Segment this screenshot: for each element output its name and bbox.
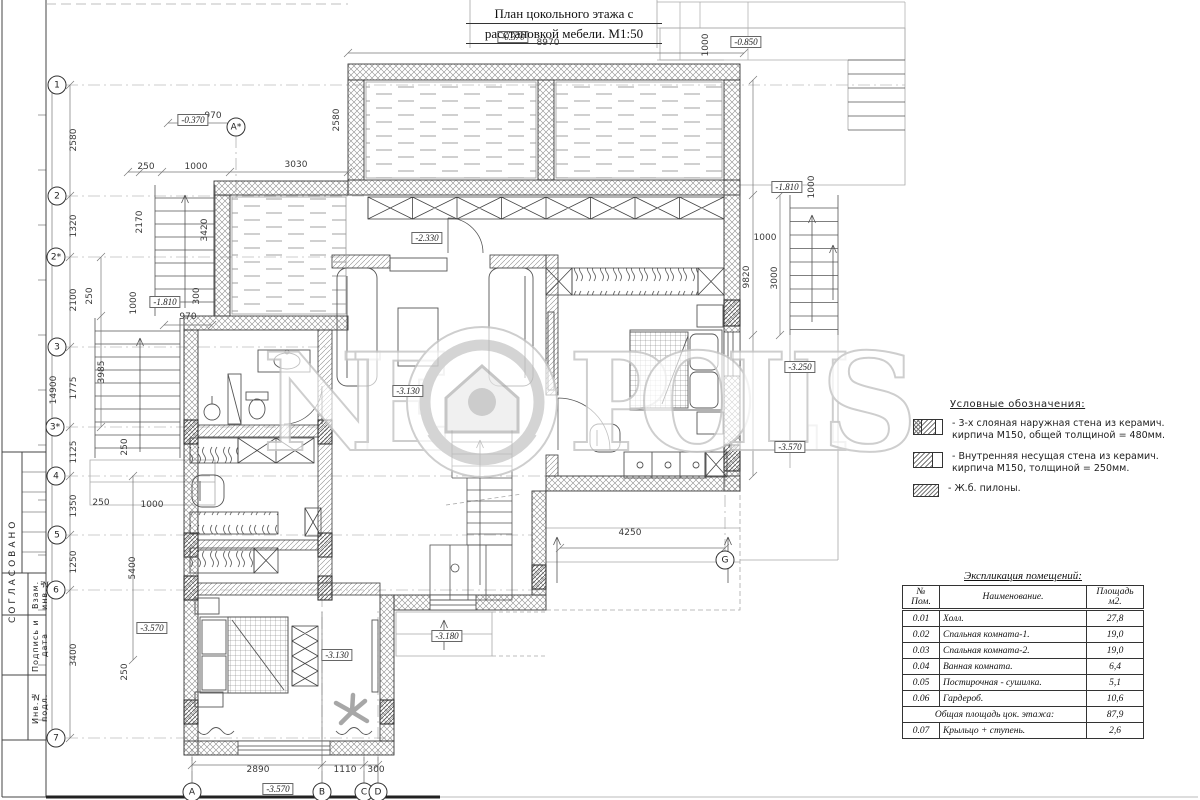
dimension-label: 3420 — [200, 219, 210, 242]
room-table-cell: 0.02 — [903, 627, 940, 643]
elevation-label: -3.180 — [431, 630, 462, 642]
axis-marker-3: 3 — [48, 338, 67, 357]
dimension-label: 1250 — [69, 551, 79, 574]
room-table-cell: 19,0 — [1087, 627, 1144, 643]
dimension-label: 250 — [92, 498, 109, 508]
dimension-label: 1110 — [334, 765, 357, 775]
dimension-label: 250 — [120, 438, 130, 455]
dimension-label: 2170 — [135, 211, 145, 234]
table-row: 0.02Спальная комната-1.19,0 — [903, 627, 1144, 643]
room-table-cell: 10,6 — [1087, 691, 1144, 707]
axis-marker-2: 2 — [48, 187, 67, 206]
room-table-cell: 0.03 — [903, 643, 940, 659]
room-table-cell: Гардероб. — [940, 691, 1087, 707]
dimension-label: 1000 — [129, 292, 139, 315]
room-table-header: Площадь м2. — [1087, 586, 1144, 610]
dimension-label: 5400 — [128, 557, 138, 580]
dimension-label: 1775 — [69, 377, 79, 400]
elevation-label: -3.130 — [392, 385, 423, 397]
room-table-cell: 0.06 — [903, 691, 940, 707]
dimension-label: 300 — [192, 287, 202, 304]
legend-item-text: - Ж.б. пилоны. — [948, 483, 1021, 495]
dimension-label: 1000 — [141, 500, 164, 510]
elevation-label: -2.330 — [411, 232, 442, 244]
dimension-label: 250 — [120, 663, 130, 680]
elevation-label: -3.570 — [262, 783, 293, 795]
stamp-field: Взам. инв.№ — [31, 576, 49, 613]
table-row: 0.04Ванная комната.6,4 — [903, 659, 1144, 675]
room-table-cell: Ванная комната. — [940, 659, 1087, 675]
room-table-cell: 0.07 — [903, 723, 940, 739]
drawing-title-line1: План цокольного этажа с — [466, 6, 662, 24]
room-table-title: Экспликация помещений: — [902, 570, 1144, 582]
legend-item: - Внутренняя несущая стена из керамич.ки… — [913, 451, 1193, 476]
room-table-cell: 27,8 — [1087, 610, 1144, 627]
axis-marker-B: B — [313, 783, 332, 800]
dimension-label: 300 — [367, 765, 384, 775]
axis-marker-G: G — [716, 551, 735, 570]
room-table-cell: 0.01 — [903, 610, 940, 627]
stamp-field: Инв.№ подл. — [31, 678, 49, 738]
legend-items: - 3-х слояная наружная стена из керамич.… — [913, 418, 1193, 497]
dimension-label: 2890 — [247, 765, 270, 775]
axis-marker-6: 6 — [47, 581, 66, 600]
dimension-label: 970 — [179, 312, 196, 322]
legend: Условные обозначения: - 3-х слояная нару… — [913, 399, 1193, 505]
dimension-label: 1125 — [69, 441, 79, 464]
pylon-symbol-icon — [913, 484, 939, 497]
elevation-label: -3.250 — [784, 361, 815, 373]
room-table-cell: 19,0 — [1087, 643, 1144, 659]
dimension-label: 250 — [85, 287, 95, 304]
room-table-cell: 2,6 — [1087, 723, 1144, 739]
room-table-cell: 6,4 — [1087, 659, 1144, 675]
legend-item-text: - 3-х слояная наружная стена из керамич.… — [952, 418, 1165, 443]
room-table-cell: Спальная комната-2. — [940, 643, 1087, 659]
room-table-cell: 5,1 — [1087, 675, 1144, 691]
room-table-cell: Холл. — [940, 610, 1087, 627]
axis-marker-D: D — [369, 783, 388, 800]
elevation-label: -3.570 — [774, 441, 805, 453]
drawing-title-line2: расстановкой мебели. М1:50 — [466, 26, 662, 44]
dimension-label: 250 — [137, 162, 154, 172]
dimension-label: 9820 — [742, 266, 752, 289]
table-row: 0.03Спальная комната-2.19,0 — [903, 643, 1144, 659]
legend-item-text: - Внутренняя несущая стена из керамич.ки… — [952, 451, 1159, 476]
dimension-label: 3000 — [770, 267, 780, 290]
room-table-head: № Пом.Наименование.Площадь м2. — [903, 586, 1144, 610]
axis-marker-5: 5 — [48, 526, 67, 545]
room-table-cell: Крыльцо + ступень. — [940, 723, 1087, 739]
elevation-label: -0.370 — [177, 114, 208, 126]
room-table-cell: Постирочная - сушилка. — [940, 675, 1087, 691]
dimension-label: 3985 — [97, 361, 107, 384]
room-table-cell: 87,9 — [1087, 707, 1144, 723]
stamp-approved: СОГЛАСОВАНО — [8, 487, 18, 655]
drawing-title: План цокольного этажа с расстановкой меб… — [466, 6, 662, 46]
dimension-label: 1000 — [185, 162, 208, 172]
dimension-label: 2580 — [332, 109, 342, 132]
legend-item: - Ж.б. пилоны. — [913, 483, 1193, 497]
room-table-cell: 0.04 — [903, 659, 940, 675]
elevation-label: -3.570 — [136, 622, 167, 634]
axis-marker-2*: 2* — [47, 248, 66, 267]
table-total-row: Общая площадь цок. этажа:87,9 — [903, 707, 1144, 723]
legend-item: - 3-х слояная наружная стена из керамич.… — [913, 418, 1193, 443]
dimension-label: 1000 — [754, 233, 777, 243]
room-table-cell: Общая площадь цок. этажа: — [903, 707, 1087, 723]
dimension-label: 2100 — [69, 289, 79, 312]
dimension-label: 2580 — [69, 129, 79, 152]
dimension-label: 1320 — [69, 215, 79, 238]
elevation-label: -3.130 — [321, 649, 352, 661]
room-table-header: № Пом. — [903, 586, 940, 610]
table-row: 0.05Постирочная - сушилка.5,1 — [903, 675, 1144, 691]
dimension-label: 1350 — [69, 495, 79, 518]
axis-marker-7: 7 — [47, 729, 66, 748]
outer-wall-symbol-icon — [913, 419, 943, 435]
elevation-label: -0.850 — [730, 36, 761, 48]
room-explication: Экспликация помещений: № Пом.Наименовани… — [902, 570, 1144, 739]
elevation-label: -1.810 — [771, 181, 802, 193]
room-table-body: 0.01Холл.27,80.02Спальная комната-1.19,0… — [903, 610, 1144, 739]
dimension-label: 3400 — [69, 644, 79, 667]
dimension-label: 1000 — [807, 176, 817, 199]
floor-plan-sheet: NE POLIS 8970970250100030302580100025801… — [0, 0, 1200, 800]
axis-marker-3*: 3* — [46, 418, 65, 437]
axis-marker-A*: A* — [227, 118, 246, 137]
table-row: 0.06Гардероб.10,6 — [903, 691, 1144, 707]
room-table-cell: 0.05 — [903, 675, 940, 691]
stamp-field: Подпись и дата — [31, 618, 49, 673]
table-row: 0.01Холл.27,8 — [903, 610, 1144, 627]
dimension-label: 14900 — [49, 376, 59, 405]
legend-title: Условные обозначения: — [950, 399, 1193, 410]
table-row: 0.07Крыльцо + ступень.2,6 — [903, 723, 1144, 739]
elevation-label: -1.810 — [149, 296, 180, 308]
dimension-label: 3030 — [285, 160, 308, 170]
room-table-cell: Спальная комната-1. — [940, 627, 1087, 643]
dimension-label: 4250 — [619, 528, 642, 538]
inner-wall-symbol-icon — [913, 452, 943, 468]
axis-marker-A: A — [183, 783, 202, 800]
dimension-label: 1000 — [701, 34, 711, 57]
axis-marker-4: 4 — [47, 467, 66, 486]
room-table-header: Наименование. — [940, 586, 1087, 610]
axis-marker-1: 1 — [48, 76, 67, 95]
room-table: № Пом.Наименование.Площадь м2. 0.01Холл.… — [902, 585, 1144, 739]
